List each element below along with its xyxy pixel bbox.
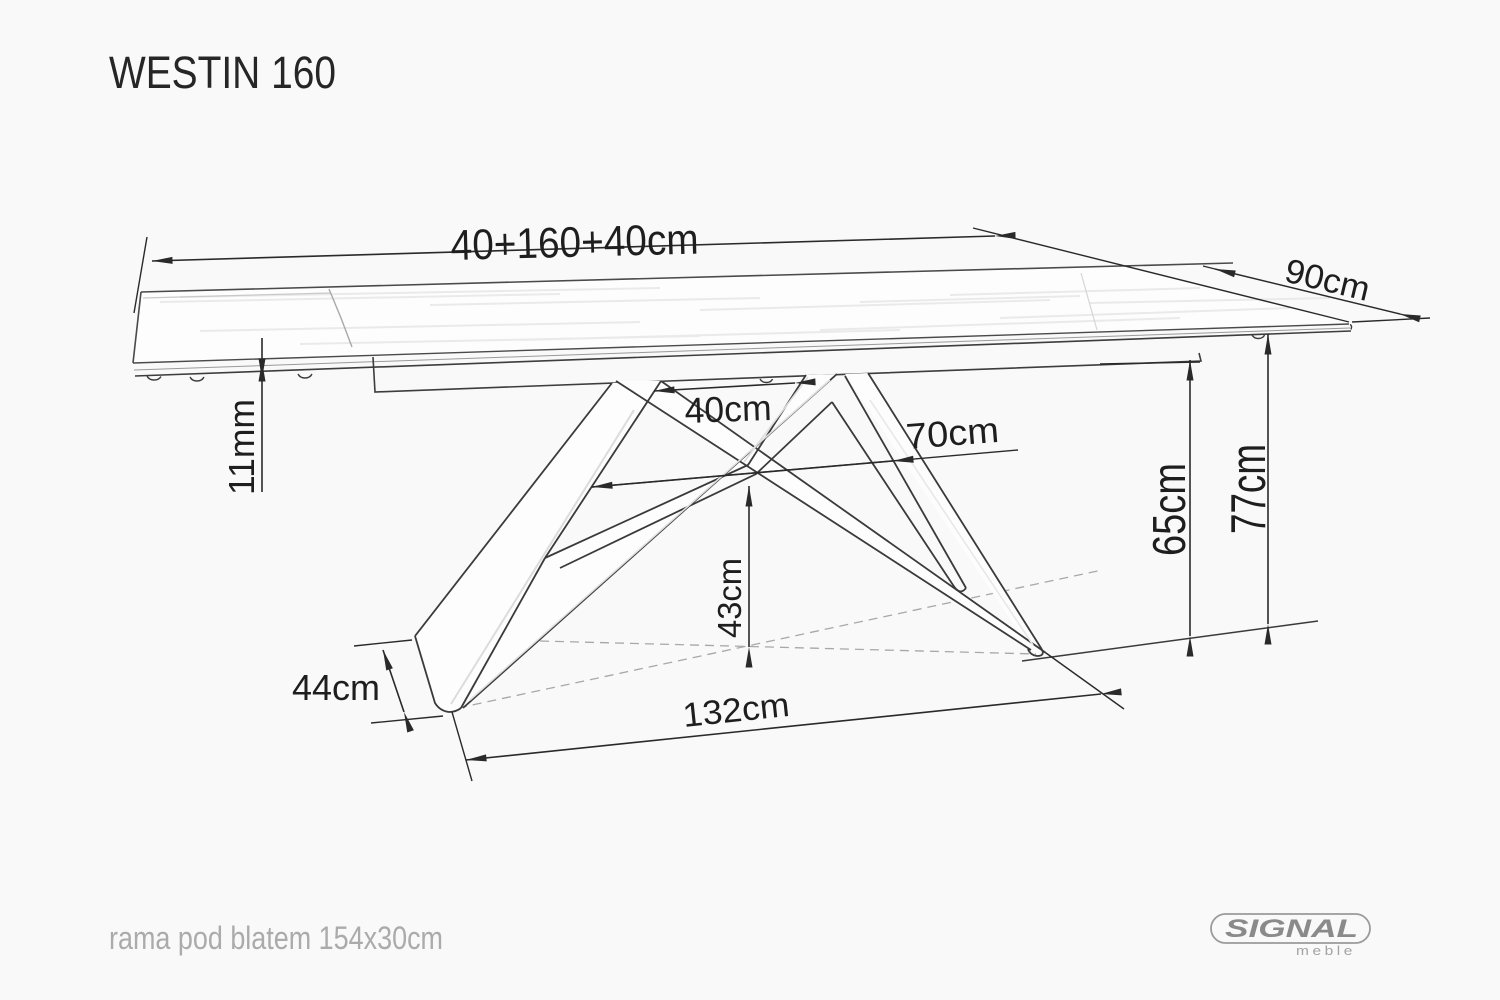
svg-text:40+160+40cm: 40+160+40cm [450, 216, 699, 270]
svg-text:70cm: 70cm [904, 409, 1000, 457]
svg-text:11mm: 11mm [221, 399, 262, 495]
svg-text:65cm: 65cm [1143, 463, 1195, 556]
svg-text:WESTIN 160: WESTIN 160 [109, 47, 336, 98]
svg-text:43cm: 43cm [711, 558, 748, 638]
svg-text:meble: meble [1296, 943, 1356, 958]
svg-text:rama pod blatem 154x30cm: rama pod blatem 154x30cm [109, 920, 443, 956]
svg-text:SIGNAL: SIGNAL [1225, 915, 1358, 943]
svg-text:77cm: 77cm [1222, 444, 1276, 534]
svg-text:40cm: 40cm [684, 387, 772, 431]
svg-text:44cm: 44cm [292, 667, 380, 708]
